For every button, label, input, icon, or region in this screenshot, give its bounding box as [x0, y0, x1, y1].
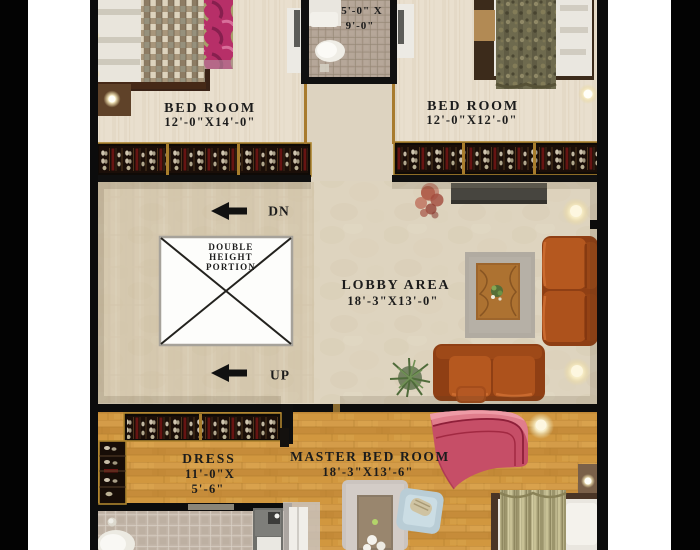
- svg-text:MASTER BED ROOM: MASTER BED ROOM: [290, 449, 450, 464]
- svg-text:LOBBY AREA: LOBBY AREA: [342, 278, 451, 293]
- svg-text:9'-0": 9'-0": [346, 20, 375, 32]
- svg-text:DN: DN: [268, 204, 290, 219]
- svg-text:HEIGHT: HEIGHT: [209, 252, 253, 262]
- svg-text:11'-0"X: 11'-0"X: [185, 467, 235, 481]
- svg-text:BED ROOM: BED ROOM: [427, 99, 519, 114]
- svg-text:5'-0" X: 5'-0" X: [341, 5, 383, 17]
- svg-text:PORTION: PORTION: [206, 262, 256, 272]
- svg-text:18'-3"X13'-0": 18'-3"X13'-0": [347, 294, 438, 308]
- svg-text:18'-3"X13'-6": 18'-3"X13'-6": [322, 465, 413, 479]
- svg-text:DRESS: DRESS: [182, 451, 236, 466]
- svg-text:5'-6": 5'-6": [191, 482, 224, 496]
- svg-text:DOUBLE: DOUBLE: [208, 242, 253, 252]
- svg-text:UP: UP: [270, 368, 290, 383]
- svg-text:12'-0"X14'-0": 12'-0"X14'-0": [164, 115, 255, 129]
- svg-text:12'-0"X12'-0": 12'-0"X12'-0": [426, 113, 517, 127]
- svg-text:BED ROOM: BED ROOM: [164, 101, 256, 116]
